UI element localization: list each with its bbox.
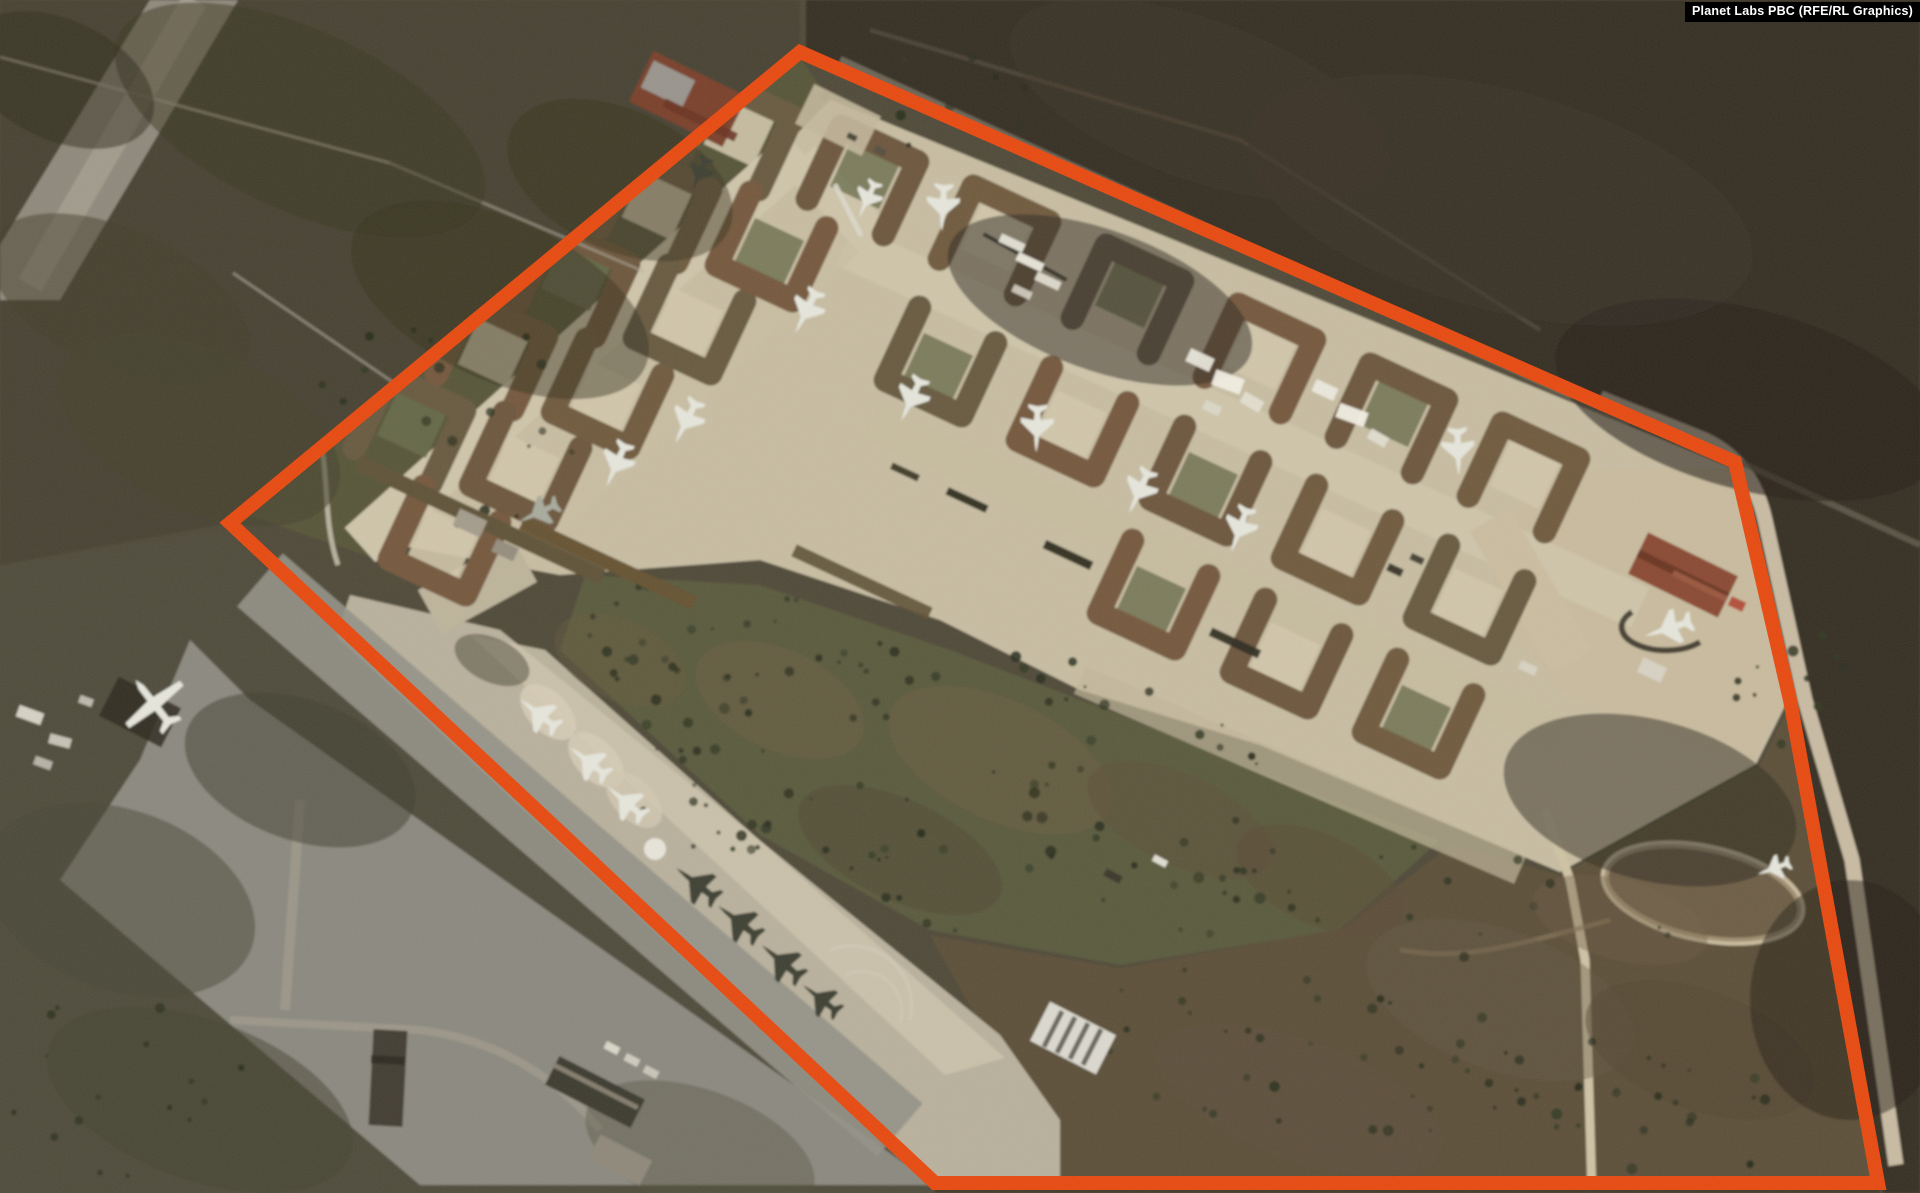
watermark-label: Planet Labs PBC (RFE/RL Graphics) bbox=[1685, 2, 1920, 22]
watermark-text: Planet Labs PBC (RFE/RL Graphics) bbox=[1692, 4, 1913, 18]
film-grain bbox=[0, 0, 1920, 1193]
satellite-image: Planet Labs PBC (RFE/RL Graphics) bbox=[0, 0, 1920, 1193]
